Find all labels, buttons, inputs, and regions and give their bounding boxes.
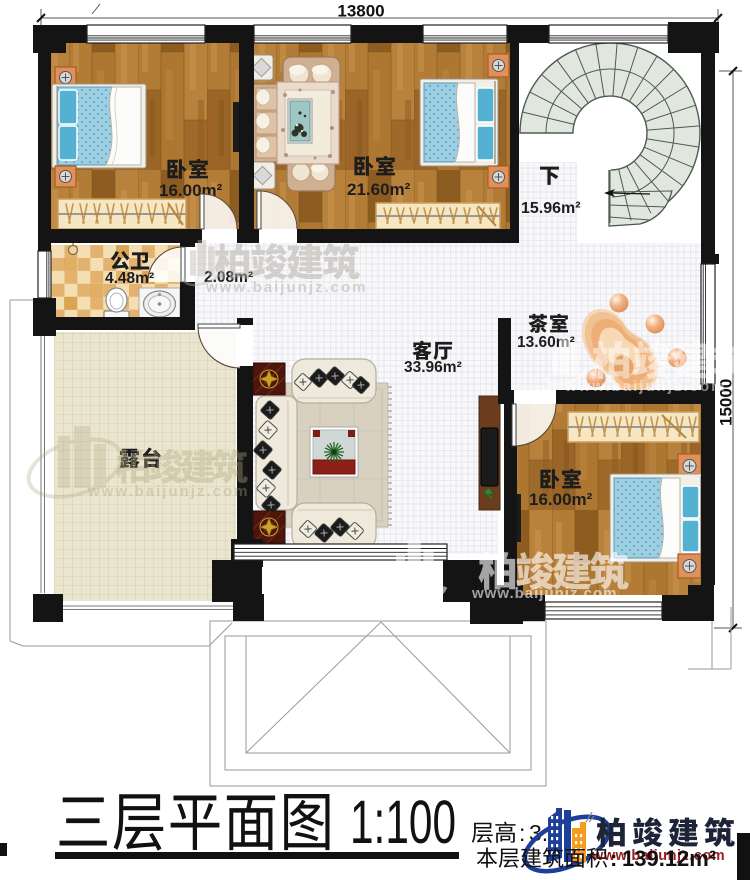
svg-text:www.baijunjz.com: www.baijunjz.com xyxy=(205,279,367,296)
svg-text:1:100: 1:100 xyxy=(350,788,456,856)
svg-text::: : xyxy=(610,846,617,871)
svg-text:4.48m²: 4.48m² xyxy=(105,270,154,287)
svg-text:16.00m²: 16.00m² xyxy=(529,490,593,509)
svg-text:21.60m²: 21.60m² xyxy=(347,180,411,199)
svg-text:139.12m²: 139.12m² xyxy=(622,846,716,871)
svg-text:www.baijunjz.com: www.baijunjz.com xyxy=(564,378,726,395)
svg-text:www.baijunjz.com: www.baijunjz.com xyxy=(87,483,249,500)
svg-text:33.96m²: 33.96m² xyxy=(404,359,462,376)
svg-text:13800: 13800 xyxy=(337,2,384,21)
svg-text::: : xyxy=(519,820,525,846)
svg-text:15.96m²: 15.96m² xyxy=(521,200,581,217)
svg-text:www.baijunjz.com: www.baijunjz.com xyxy=(471,585,617,602)
